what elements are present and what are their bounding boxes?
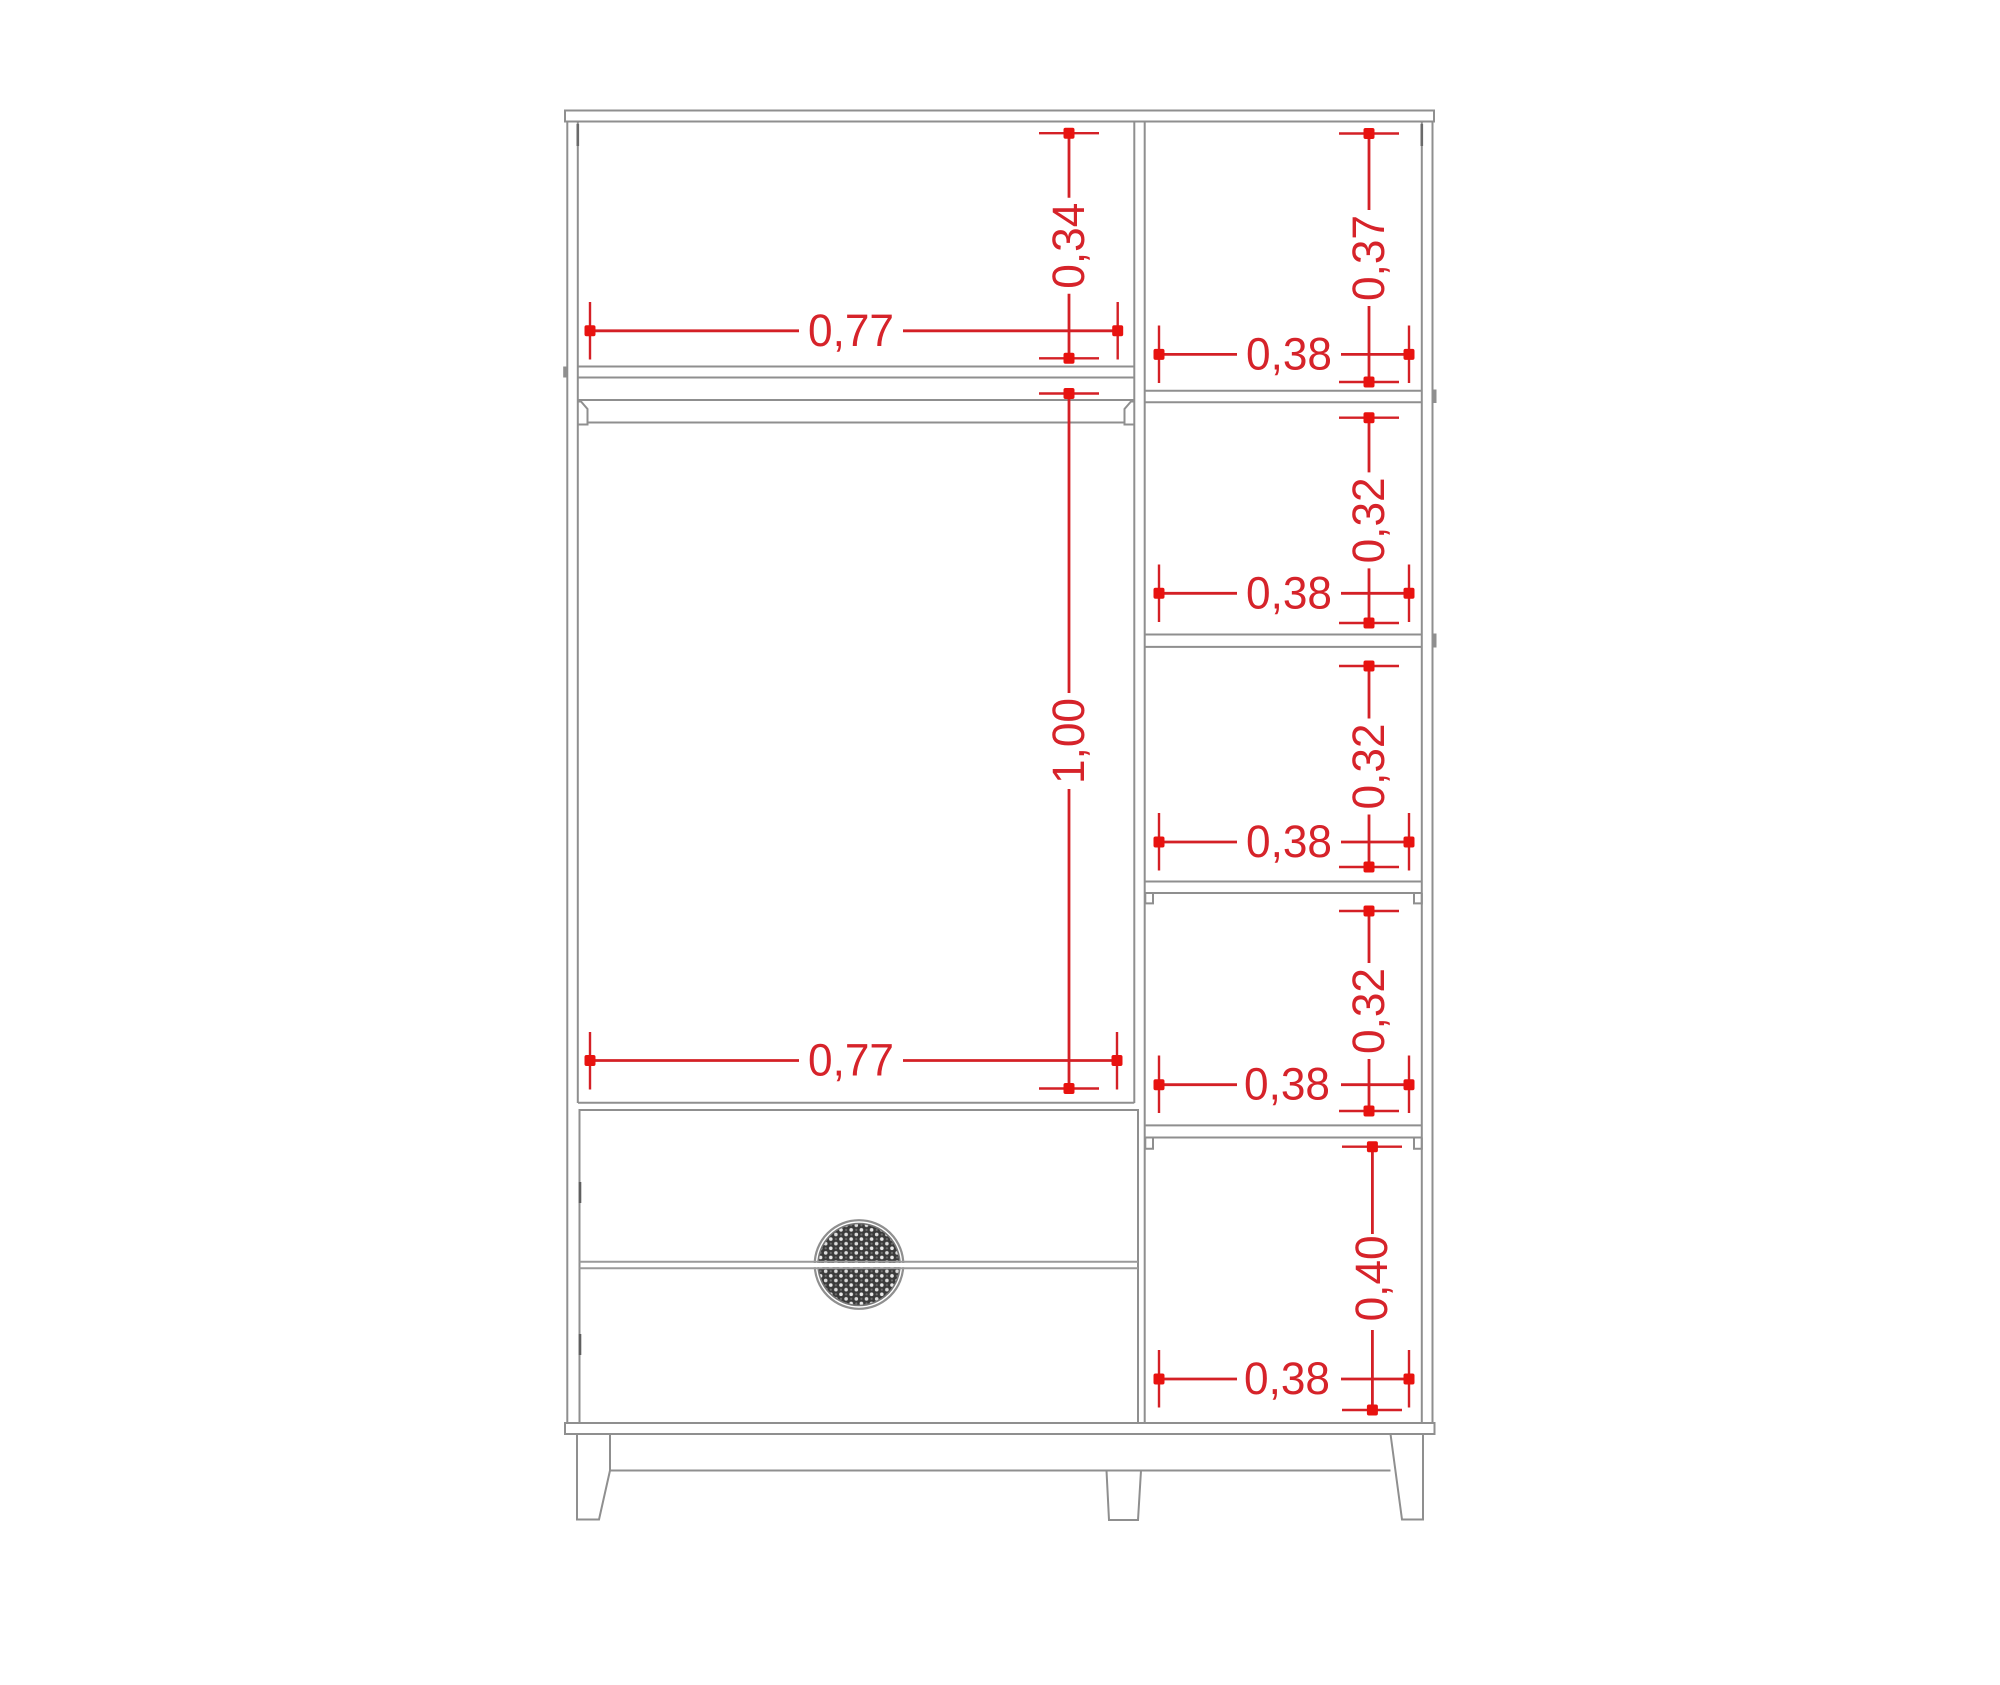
svg-text:0,38: 0,38: [1244, 1059, 1330, 1110]
svg-text:0,77: 0,77: [808, 1035, 894, 1086]
svg-text:0,40: 0,40: [1346, 1235, 1397, 1321]
svg-text:0,38: 0,38: [1246, 328, 1332, 379]
svg-text:0,38: 0,38: [1246, 567, 1332, 618]
svg-text:0,34: 0,34: [1043, 203, 1094, 289]
svg-text:0,38: 0,38: [1246, 816, 1332, 867]
svg-text:0,32: 0,32: [1343, 477, 1394, 563]
svg-text:0,38: 0,38: [1244, 1353, 1330, 1404]
svg-text:0,77: 0,77: [808, 305, 894, 356]
svg-text:1,00: 1,00: [1043, 698, 1094, 784]
svg-text:0,37: 0,37: [1343, 215, 1394, 301]
svg-text:0,32: 0,32: [1343, 968, 1394, 1054]
svg-text:0,32: 0,32: [1343, 724, 1394, 810]
